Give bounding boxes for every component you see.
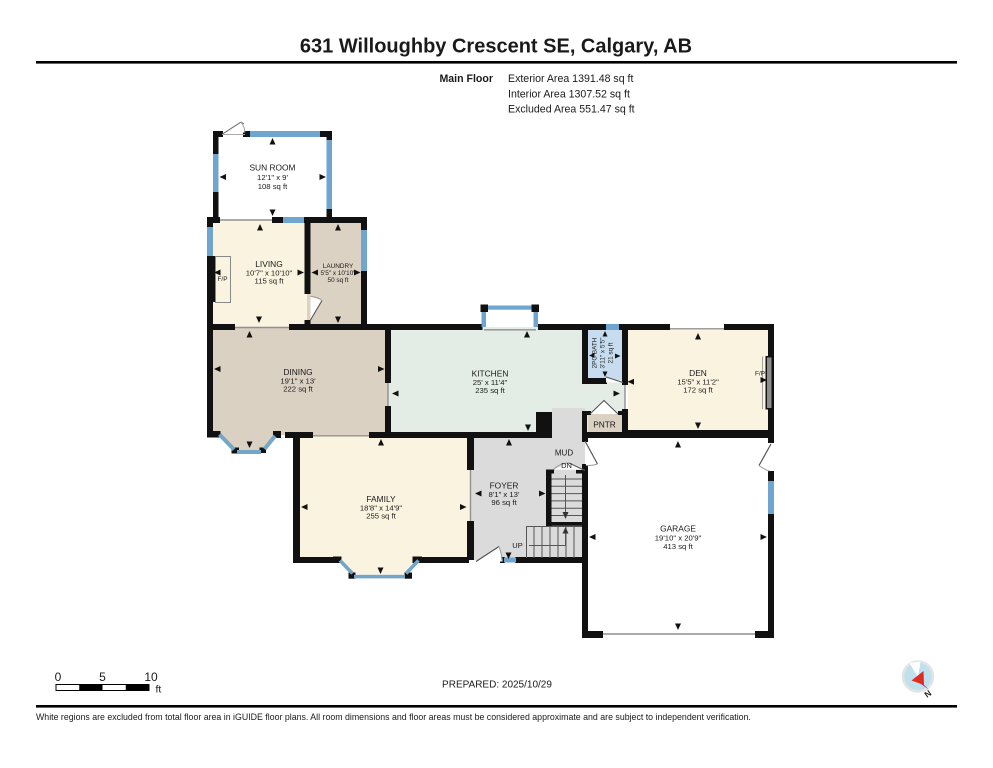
- svg-text:235 sq ft: 235 sq ft: [475, 386, 505, 395]
- svg-text:PNTR: PNTR: [593, 420, 616, 430]
- svg-text:SUN ROOM: SUN ROOM: [249, 163, 295, 173]
- svg-text:FAMILY: FAMILY: [366, 494, 396, 504]
- svg-text:12'1" x 9': 12'1" x 9': [257, 173, 288, 182]
- svg-text:GARAGE: GARAGE: [660, 524, 696, 534]
- svg-text:MUD: MUD: [555, 448, 573, 457]
- svg-text:96 sq ft: 96 sq ft: [491, 498, 517, 507]
- svg-text:108 sq ft: 108 sq ft: [258, 182, 288, 191]
- svg-text:631 Willoughby Crescent SE, Ca: 631 Willoughby Crescent SE, Calgary, AB: [300, 36, 692, 58]
- svg-text:413 sq ft: 413 sq ft: [663, 542, 693, 551]
- svg-text:F/P: F/P: [218, 276, 228, 283]
- svg-text:2PC BATH: 2PC BATH: [592, 337, 599, 368]
- svg-text:115 sq ft: 115 sq ft: [255, 277, 285, 286]
- svg-text:21 sq ft: 21 sq ft: [608, 342, 615, 363]
- svg-text:PREPARED: 2025/10/29: PREPARED: 2025/10/29: [442, 680, 552, 691]
- svg-text:FOYER: FOYER: [490, 481, 519, 491]
- svg-text:LAUNDRY: LAUNDRY: [323, 263, 354, 270]
- svg-text:KITCHEN: KITCHEN: [472, 369, 509, 379]
- svg-text:F/P: F/P: [755, 371, 765, 378]
- svg-text:Interior Area 1307.52 sq ft: Interior Area 1307.52 sq ft: [508, 89, 630, 101]
- svg-text:5'5" x 10'10": 5'5" x 10'10": [320, 270, 355, 277]
- svg-text:DINING: DINING: [283, 367, 312, 377]
- svg-text:172 sq ft: 172 sq ft: [683, 386, 713, 395]
- svg-text:0: 0: [55, 670, 62, 684]
- svg-text:Exterior Area 1391.48 sq ft: Exterior Area 1391.48 sq ft: [508, 73, 633, 85]
- svg-text:ft: ft: [156, 684, 162, 696]
- svg-text:DN: DN: [561, 461, 572, 470]
- svg-text:Excluded Area 551.47 sq ft: Excluded Area 551.47 sq ft: [508, 104, 635, 116]
- svg-text:LIVING: LIVING: [255, 259, 282, 269]
- svg-text:DEN: DEN: [689, 368, 707, 378]
- svg-text:White regions are excluded fro: White regions are excluded from total fl…: [36, 712, 751, 722]
- svg-text:Main Floor: Main Floor: [439, 73, 493, 85]
- svg-text:222 sq ft: 222 sq ft: [283, 385, 313, 394]
- svg-text:5: 5: [99, 670, 106, 684]
- svg-text:3'11" x 5'5": 3'11" x 5'5": [600, 337, 607, 368]
- svg-text:10: 10: [144, 670, 158, 684]
- svg-text:UP: UP: [512, 541, 522, 550]
- svg-text:255 sq ft: 255 sq ft: [366, 512, 396, 521]
- svg-text:50 sq ft: 50 sq ft: [328, 277, 349, 284]
